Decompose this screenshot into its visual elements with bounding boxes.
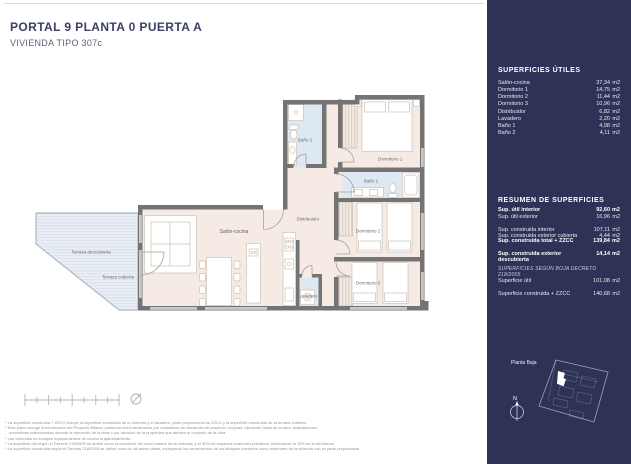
row-value: 4,11	[588, 130, 610, 137]
row-value: 37,34	[588, 80, 610, 87]
row-value: 16,96	[588, 214, 610, 220]
compass-icon	[131, 394, 141, 404]
row-value: 10,96	[588, 101, 610, 108]
table-row: Dormitorio 114,75m2	[498, 87, 620, 94]
row-unit: m2	[610, 207, 620, 213]
row-value: 140,68	[588, 291, 610, 297]
row-unit: m2	[610, 109, 620, 116]
room-label-terraza-descubierta: Terraza descubierta	[71, 250, 111, 255]
table-row: Sup. construida exterior descubierta14,1…	[498, 251, 620, 263]
row-value: 14,75	[588, 87, 610, 94]
row-label: Sup. construida exterior descubierta	[498, 251, 588, 263]
row-unit: m2	[610, 94, 620, 101]
row-value: 14,14	[588, 251, 610, 257]
row-label: Baño 2	[498, 130, 588, 137]
row-label: Dormitorio 1	[498, 87, 588, 94]
row-label: Dormitorio 3	[498, 101, 588, 108]
table-row: Baño 14,98m2	[498, 123, 620, 130]
table-row: Baño 24,11m2	[498, 130, 620, 137]
table-row: Salón-cocina37,34m2	[498, 80, 620, 87]
scale-bar	[22, 390, 152, 410]
room-label-distribuidor: Distribuidor	[297, 217, 320, 222]
room-label-bano-2: Baño 2	[298, 138, 312, 143]
row-value: 11,44	[588, 94, 610, 101]
row-label: Baño 1	[498, 123, 588, 130]
row-unit: m2	[610, 87, 620, 94]
table-row: Superficie útil101,08m2	[498, 278, 620, 284]
row-value: 4,98	[588, 123, 610, 130]
row-label: Sup. útil exterior	[498, 214, 588, 220]
row-value: 92,60	[588, 207, 610, 213]
row-label: Sup. útil interior	[498, 207, 588, 213]
row-label: Distribuidor	[498, 109, 588, 116]
row-unit: m2	[610, 291, 620, 297]
superficies-utiles-section: SUPERFICIES ÚTILES Salón-cocina37,34m2 D…	[498, 67, 620, 137]
room-label-lavadero: Lavadero	[299, 294, 318, 299]
unit-highlight	[557, 371, 566, 386]
terrace	[36, 213, 138, 310]
row-label: Sup. construida total + ZZCC	[498, 238, 588, 244]
row-unit: m2	[610, 278, 620, 284]
room-label-bano-1: Baño 1	[364, 179, 378, 184]
row-label: Dormitorio 2	[498, 94, 588, 101]
row-unit: m2	[610, 251, 620, 257]
table-row: Dormitorio 211,44m2	[498, 94, 620, 101]
row-unit: m2	[610, 101, 620, 108]
row-value: 139,84	[588, 238, 610, 244]
superficies-utiles-title: SUPERFICIES ÚTILES	[498, 67, 620, 74]
room-label-dormitorio-1: Dormitorio 1	[378, 157, 403, 162]
row-unit: m2	[610, 238, 620, 244]
table-row: Dormitorio 310,96m2	[498, 101, 620, 108]
row-value: 2,20	[588, 116, 610, 123]
footer-disclaimers: * La superficie construida + ZZCC incluy…	[5, 420, 483, 451]
row-label: Superficie construida + ZZCC	[498, 291, 588, 297]
table-row: Sup. útil exterior16,96m2	[498, 214, 620, 220]
row-label: Lavadero	[498, 116, 588, 123]
table-row: Sup. útil interior92,60m2	[498, 207, 620, 213]
room-label-dormitorio-3: Dormitorio 3	[356, 281, 381, 286]
row-value: 101,08	[588, 278, 610, 284]
north-arrow-icon	[505, 400, 531, 426]
boja-title: SUPERFICIES SEGÚN BOJA DECRETO 218/2005	[498, 266, 620, 278]
row-unit: m2	[610, 214, 620, 220]
row-unit: m2	[610, 80, 620, 87]
room-label-terraza-cubierta: Terraza cubierta	[102, 275, 134, 280]
room-label-salon-cocina: Salón-cocina	[220, 229, 249, 235]
disclaimer-line: * La superficie construida según el Decr…	[5, 446, 483, 451]
resumen-title: RESUMEN DE SUPERFICIES	[498, 197, 620, 204]
table-row: Sup. construida total + ZZCC139,84m2	[498, 238, 620, 244]
row-label: Salón-cocina	[498, 80, 588, 87]
table-row: Lavadero2,20m2	[498, 116, 620, 123]
table-row: Superficie construida + ZZCC140,68m2	[498, 291, 620, 297]
row-unit: m2	[610, 130, 620, 137]
minimap-label: Planta Baja	[511, 360, 537, 366]
row-label: Superficie útil	[498, 278, 588, 284]
row-unit: m2	[610, 123, 620, 130]
site-plan-minimap	[534, 352, 616, 428]
table-row: Distribuidor6,82m2	[498, 109, 620, 116]
floor-plan: Salón-cocina Distribuidor Dormitorio 1 D…	[0, 0, 487, 464]
room-label-dormitorio-2: Dormitorio 2	[356, 229, 381, 234]
row-unit: m2	[610, 116, 620, 123]
row-value: 6,82	[588, 109, 610, 116]
